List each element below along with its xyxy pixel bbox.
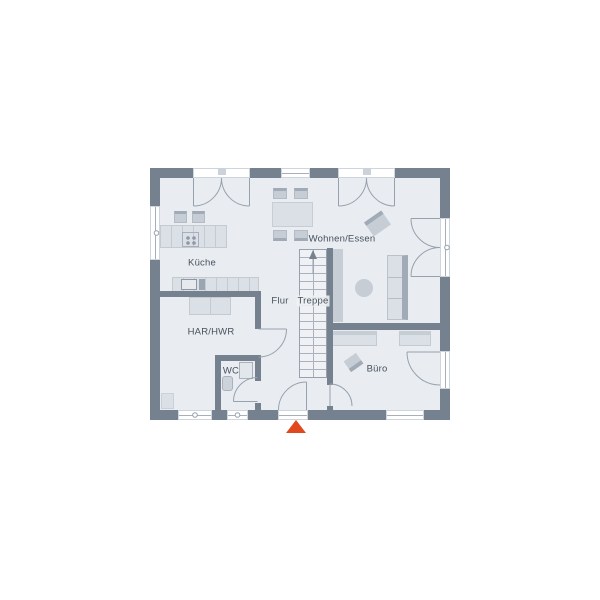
window-top — [281, 168, 310, 178]
dining-table — [272, 202, 313, 227]
interior-wall-utility-right — [255, 297, 261, 329]
room-label-treppe: Treppe — [297, 296, 330, 307]
cooktop — [182, 232, 199, 247]
kitchen-sink — [181, 279, 197, 290]
office-door-right — [440, 351, 450, 389]
kitchen-appliance — [199, 279, 205, 290]
interior-wall-stairs-stub — [327, 406, 333, 410]
dining-chair — [273, 188, 287, 199]
interior-wall-stairs-right — [327, 248, 333, 385]
room-label-wohnen-essen: Wohnen/Essen — [309, 234, 376, 245]
office-cabinet — [399, 331, 431, 346]
room-label-flur: Flur — [271, 296, 288, 307]
window-left — [150, 206, 160, 260]
dining-chair — [294, 230, 308, 241]
window-bottom-wc — [227, 410, 248, 420]
desk — [331, 331, 377, 346]
door-frame-mark — [363, 168, 371, 175]
interior-wall-wc-right-upper — [255, 361, 261, 381]
room-label-buero: Büro — [367, 364, 388, 375]
entrance-marker-icon — [286, 420, 306, 433]
utility-corner-unit — [161, 393, 174, 409]
patio-door-right — [440, 218, 450, 277]
interior-wall-kitchen-utility — [150, 291, 261, 297]
floor-plan: Küche Wohnen/Essen Flur Treppe HAR/HWR W… — [0, 0, 600, 600]
sofa — [387, 255, 408, 320]
entrance-door — [278, 410, 308, 420]
window-bottom-office — [386, 410, 424, 420]
window-bottom-utility — [178, 410, 212, 420]
wc-sink — [239, 362, 253, 379]
coffee-table — [355, 279, 373, 297]
dining-chair — [294, 188, 308, 199]
bar-stool — [174, 211, 187, 223]
dining-chair — [273, 230, 287, 241]
stair-side-band — [333, 249, 343, 322]
utility-appliance — [189, 297, 231, 315]
interior-wall-wc-left — [215, 355, 221, 410]
room-label-har-hwr: HAR/HWR — [188, 327, 235, 338]
room-label-kueche: Küche — [188, 258, 216, 269]
bar-stool — [192, 211, 205, 223]
toilet — [222, 376, 233, 391]
staircase — [299, 249, 327, 378]
interior-wall-living-office — [327, 323, 440, 330]
interior-wall-wc-right-lower — [255, 403, 261, 410]
room-label-wc: WC — [223, 366, 239, 377]
door-frame-mark — [218, 168, 226, 175]
